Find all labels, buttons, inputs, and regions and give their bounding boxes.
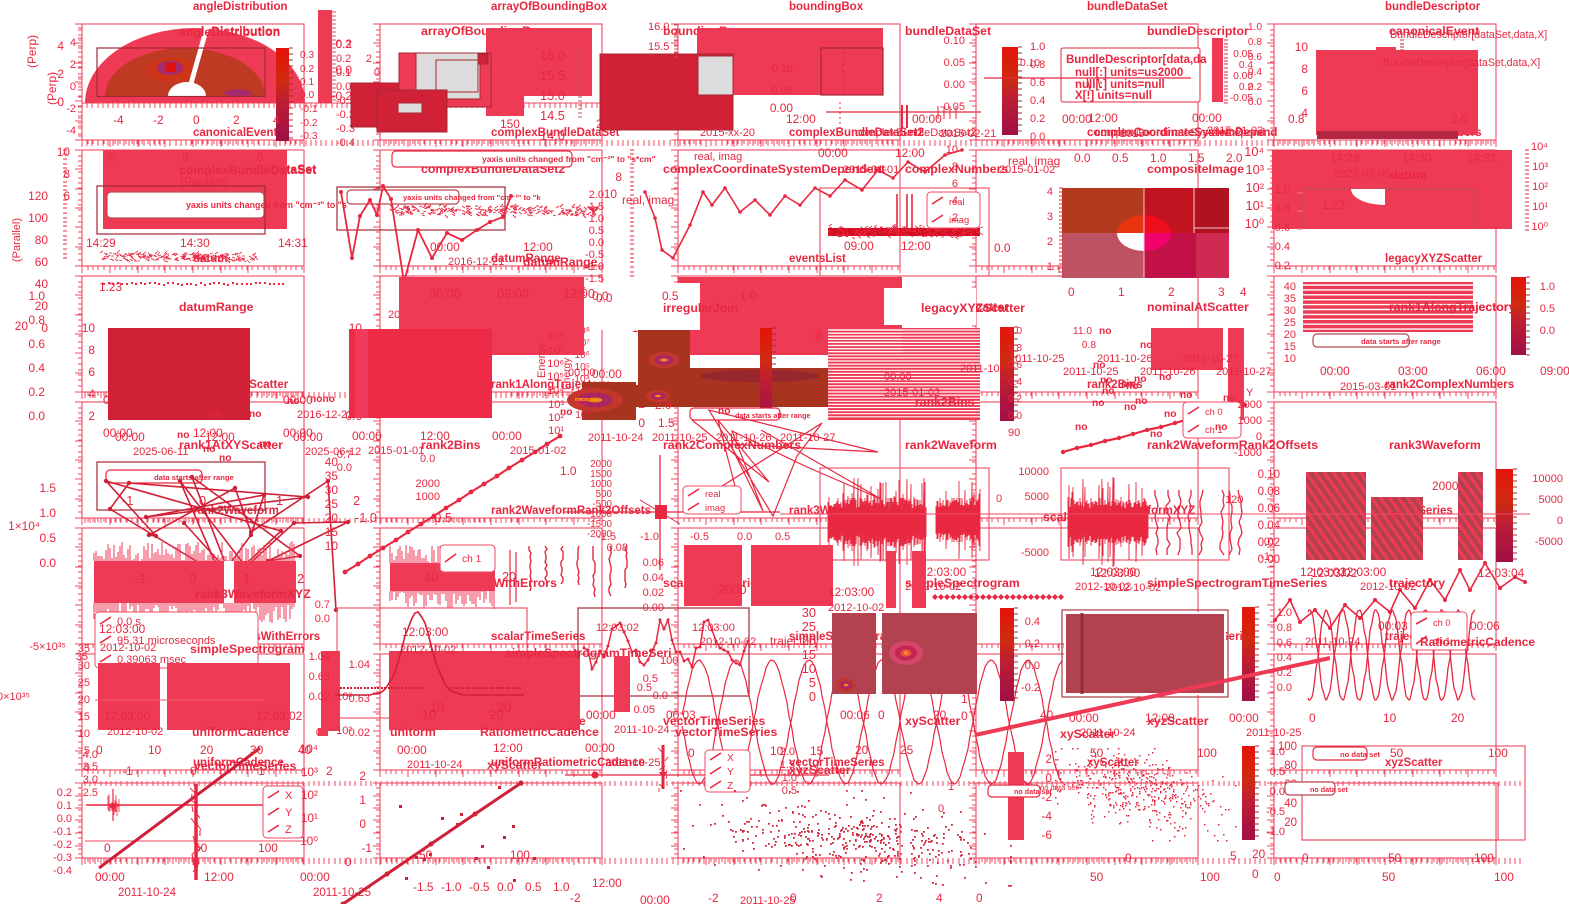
svg-text:es: es <box>1390 509 1402 521</box>
svg-text:2015-01-02: 2015-01-02 <box>510 445 566 457</box>
svg-text:10: 10 <box>325 539 339 553</box>
svg-text:1.5: 1.5 <box>39 481 56 495</box>
svg-text:1: 1 <box>1047 261 1053 273</box>
svg-text:5: 5 <box>257 150 264 164</box>
svg-text:0.0: 0.0 <box>1030 131 1045 143</box>
svg-text:bundleDescriptor: bundleDescriptor <box>1147 24 1249 38</box>
svg-text:0: 0 <box>1045 771 1052 785</box>
svg-text:0.2: 0.2 <box>28 385 45 399</box>
svg-text:0.5: 0.5 <box>1112 151 1129 165</box>
svg-text:1.23: 1.23 <box>99 280 123 294</box>
svg-text:12:00: 12:00 <box>420 429 450 443</box>
svg-text:10³: 10³ <box>336 691 352 703</box>
svg-text:1.0: 1.0 <box>1248 22 1262 33</box>
svg-text:-0.3: -0.3 <box>300 131 318 142</box>
svg-text:yaxis units changed from "cm⁻³: yaxis units changed from "cm⁻³" to "s*cm… <box>482 154 656 164</box>
svg-text:-0.1: -0.1 <box>53 826 72 838</box>
svg-text:2011-10-25: 2011-10-25 <box>605 757 660 769</box>
svg-text:2011-10-27: 2011-10-27 <box>1216 366 1271 378</box>
svg-text:no data set: no data set <box>1340 750 1381 759</box>
svg-text:0.5: 0.5 <box>1270 766 1285 778</box>
svg-text:0.0: 0.0 <box>57 813 72 825</box>
svg-text:2000: 2000 <box>718 582 746 597</box>
svg-text:6: 6 <box>1301 84 1308 98</box>
svg-text:3.0: 3.0 <box>83 774 98 786</box>
svg-text:(Parallel): (Parallel) <box>180 175 228 189</box>
svg-text:10⁰: 10⁰ <box>300 834 318 848</box>
svg-text:12:03:00: 12:03:00 <box>692 622 735 634</box>
svg-text:-1000: -1000 <box>1234 447 1262 459</box>
svg-text:0.4: 0.4 <box>1008 377 1022 388</box>
svg-text:10³: 10³ <box>575 386 590 397</box>
svg-text:0.6: 0.6 <box>1277 637 1292 649</box>
svg-text:80: 80 <box>35 233 49 247</box>
svg-text:0.0: 0.0 <box>1248 97 1262 108</box>
svg-text:1.0: 1.0 <box>1540 281 1555 293</box>
svg-text:12:00: 12:00 <box>193 426 223 440</box>
svg-text:10000: 10000 <box>1018 466 1049 478</box>
svg-text:100: 100 <box>1494 870 1514 884</box>
svg-text:2: 2 <box>366 53 372 65</box>
svg-text:35: 35 <box>78 643 90 655</box>
svg-text:no: no <box>1075 422 1087 433</box>
svg-text:2000: 2000 <box>416 478 440 490</box>
svg-text:00:00: 00:00 <box>1192 111 1222 125</box>
svg-text:-0.4: -0.4 <box>53 865 72 877</box>
svg-text:no: no <box>1099 326 1111 337</box>
svg-text:4: 4 <box>1047 186 1053 198</box>
svg-text:2.0: 2.0 <box>589 189 604 201</box>
svg-text:09:00: 09:00 <box>497 286 529 301</box>
svg-text:no: no <box>259 439 271 450</box>
svg-text:0.2: 0.2 <box>1275 260 1290 272</box>
svg-text:xyScatter: xyScatter <box>487 758 543 772</box>
svg-text:2011-10-25: 2011-10-25 <box>740 895 795 904</box>
svg-text:2011-10-25: 2011-10-25 <box>1009 353 1064 365</box>
svg-text:2011-10-27: 2011-10-27 <box>1183 353 1238 365</box>
svg-text:no: no <box>1180 390 1192 401</box>
svg-text:0: 0 <box>70 81 76 93</box>
svg-text:2011-10-25: 2011-10-25 <box>313 887 371 899</box>
svg-text:-1.0: -1.0 <box>441 880 462 894</box>
svg-text:2011-10-25: 2011-10-25 <box>1246 727 1301 739</box>
svg-text:10: 10 <box>1284 353 1296 365</box>
svg-text:no: no <box>1092 398 1104 409</box>
svg-text:1: 1 <box>961 692 968 706</box>
svg-text:10⁴: 10⁴ <box>574 374 590 385</box>
svg-text:100: 100 <box>1488 746 1508 760</box>
svg-text:-4: -4 <box>1041 809 1052 823</box>
svg-text:15.0: 15.0 <box>540 88 565 103</box>
svg-text:0.6: 0.6 <box>1248 52 1262 63</box>
svg-text:10²: 10² <box>575 398 590 409</box>
svg-text:2025-05-06: 2025-05-06 <box>1334 168 1390 180</box>
svg-text:angleDistribution: angleDistribution <box>179 25 280 39</box>
svg-text:0.10: 0.10 <box>772 63 793 75</box>
svg-text:0.4: 0.4 <box>1025 616 1040 628</box>
svg-text:16.0: 16.0 <box>540 48 565 63</box>
svg-text:0: 0 <box>374 67 380 79</box>
svg-text:10: 10 <box>430 700 444 715</box>
svg-text:1: 1 <box>359 793 366 807</box>
svg-text:0.2: 0.2 <box>57 787 72 799</box>
svg-text:no: no <box>1124 402 1136 413</box>
svg-text:50: 50 <box>1090 746 1104 760</box>
svg-text:Y: Y <box>285 807 293 819</box>
svg-text:1.5: 1.5 <box>780 759 795 771</box>
svg-text:2012-10-02: 2012-10-02 <box>400 644 456 656</box>
svg-text:10²: 10² <box>301 788 318 802</box>
svg-text:0.2: 0.2 <box>1008 394 1022 405</box>
svg-text:2015-03-01: 2015-03-01 <box>1340 381 1396 393</box>
svg-text:legacyXYZScatter: legacyXYZScatter <box>1385 253 1483 265</box>
svg-text:12:03:00: 12:03:00 <box>828 585 875 599</box>
svg-text:0: 0 <box>1309 711 1316 725</box>
svg-text:2012-10-02: 2012-10-02 <box>100 642 156 654</box>
svg-text:20: 20 <box>15 319 29 333</box>
svg-text:20: 20 <box>855 743 869 757</box>
svg-text:35: 35 <box>325 469 339 483</box>
svg-text:rank2WaveformRank2Offsets: rank2WaveformRank2Offsets <box>491 505 651 517</box>
svg-text:2.0: 2.0 <box>1226 151 1243 165</box>
svg-text:-2: -2 <box>708 891 719 904</box>
svg-text:no: no <box>1102 386 1114 397</box>
svg-text:0: 0 <box>638 416 645 430</box>
svg-text:2015-01-01: 2015-01-01 <box>843 164 899 176</box>
svg-text:2.5: 2.5 <box>83 787 98 799</box>
svg-text:BundleDescriptor[dataSet,data,: BundleDescriptor[dataSet,data,X] <box>1390 29 1547 41</box>
svg-text:data starts after range: data starts after range <box>1361 337 1441 346</box>
svg-text:50: 50 <box>1390 746 1404 760</box>
svg-text:0.8: 0.8 <box>28 313 45 327</box>
svg-text:10⁰: 10⁰ <box>1531 221 1548 233</box>
svg-text:0: 0 <box>1068 285 1075 299</box>
svg-text:0.02: 0.02 <box>643 587 664 599</box>
svg-text:25: 25 <box>802 619 816 634</box>
svg-text:10⁴: 10⁴ <box>300 742 318 756</box>
svg-text:50: 50 <box>419 848 433 862</box>
svg-text:1.04: 1.04 <box>309 651 330 663</box>
svg-text:120: 120 <box>1225 494 1243 506</box>
svg-text:0: 0 <box>57 95 64 109</box>
svg-text:2011-10-25: 2011-10-25 <box>652 432 707 444</box>
svg-text:100: 100 <box>1197 746 1217 760</box>
svg-text:0: 0 <box>996 493 1002 505</box>
svg-text:0.5: 0.5 <box>662 289 679 303</box>
svg-text:1.0: 1.0 <box>782 772 797 784</box>
svg-text:0.2: 0.2 <box>1025 638 1040 650</box>
svg-text:12:00: 12:00 <box>1088 111 1118 125</box>
svg-text:-1.0: -1.0 <box>1266 826 1285 838</box>
svg-text:-5×10³⁵: -5×10³⁵ <box>29 641 66 653</box>
svg-text:no data set: no data set <box>1310 785 1349 794</box>
svg-text:4: 4 <box>936 891 943 904</box>
svg-text:0: 0 <box>790 891 797 904</box>
svg-text:2: 2 <box>1045 752 1052 766</box>
svg-text:8: 8 <box>952 161 958 173</box>
svg-text:2016-12-21: 2016-12-21 <box>448 256 504 268</box>
svg-text:simpleSpectrogram: simpleSpectrogram <box>190 642 305 656</box>
svg-text:rank2Bins: rank2Bins <box>915 395 975 409</box>
svg-text:0.0: 0.0 <box>337 462 352 474</box>
svg-text:datum: datum <box>1390 168 1427 182</box>
svg-text:-0.2: -0.2 <box>300 118 318 129</box>
svg-text:8: 8 <box>1301 62 1308 76</box>
svg-text:uniformCadence: uniformCadence <box>192 725 289 739</box>
svg-text:0: 0 <box>104 841 111 855</box>
svg-text:12:00: 12:00 <box>895 146 925 160</box>
svg-text:100: 100 <box>258 841 278 855</box>
svg-text:0.4: 0.4 <box>1277 652 1292 664</box>
svg-text:X[!] units=null: X[!] units=null <box>1075 90 1152 102</box>
svg-text:50: 50 <box>1090 870 1104 884</box>
svg-text:50: 50 <box>1382 870 1396 884</box>
svg-text:10¹: 10¹ <box>575 410 590 421</box>
svg-text:0.00: 0.00 <box>643 602 664 614</box>
svg-text:30: 30 <box>250 743 264 757</box>
svg-text:10⁴: 10⁴ <box>547 385 564 397</box>
svg-text:14:29: 14:29 <box>1330 151 1360 165</box>
svg-text:rank1AlongTrajectory: rank1AlongTrajectory <box>1389 300 1516 314</box>
svg-text:-1: -1 <box>1260 551 1270 563</box>
svg-text:0.00: 0.00 <box>944 79 965 91</box>
svg-text:Z: Z <box>285 824 292 836</box>
svg-text:00:00: 00:00 <box>352 429 382 443</box>
svg-text:12:00: 12:00 <box>204 870 234 884</box>
svg-text:0.5: 0.5 <box>39 531 56 545</box>
svg-text:Z: Z <box>727 781 733 792</box>
svg-text:2011-10-24: 2011-10-24 <box>588 432 643 444</box>
svg-text:2: 2 <box>353 493 360 508</box>
svg-text:0.63: 0.63 <box>309 671 330 683</box>
svg-text:10000: 10000 <box>1532 473 1563 485</box>
svg-text:-1: -1 <box>122 493 133 508</box>
svg-text:10¹: 10¹ <box>1246 198 1265 213</box>
svg-text:0.10: 0.10 <box>944 35 965 47</box>
svg-text:xyScatter: xyScatter <box>1060 727 1116 741</box>
svg-text:2: 2 <box>1047 236 1053 248</box>
svg-text:10⁶: 10⁶ <box>547 358 564 370</box>
svg-text:16.0: 16.0 <box>648 21 669 33</box>
svg-text:0.02: 0.02 <box>309 691 330 703</box>
svg-text:6: 6 <box>63 189 70 203</box>
svg-text:10⁰: 10⁰ <box>1245 216 1264 231</box>
svg-text:0: 0 <box>1557 515 1563 527</box>
svg-text:8: 8 <box>88 343 95 357</box>
svg-text:00:00: 00:00 <box>1229 711 1259 725</box>
svg-text:6: 6 <box>88 365 95 379</box>
svg-text:00:00: 00:00 <box>912 112 942 126</box>
svg-text:no: no <box>1164 409 1176 420</box>
svg-text:00:00: 00:00 <box>884 371 912 383</box>
svg-text:12:00: 12:00 <box>592 876 622 890</box>
svg-text:-2: -2 <box>66 103 76 115</box>
svg-text:0.8: 0.8 <box>1082 340 1096 351</box>
svg-text:10³: 10³ <box>1246 162 1265 177</box>
svg-text:0.5: 0.5 <box>775 531 790 543</box>
svg-text:-0.4: -0.4 <box>336 137 355 149</box>
svg-text:rank3WaveformXYZ: rank3WaveformXYZ <box>195 587 311 601</box>
svg-text:0.04: 0.04 <box>1258 520 1281 532</box>
svg-text:00:00: 00:00 <box>640 893 670 904</box>
svg-text:no: no <box>208 409 220 420</box>
svg-text:0.7: 0.7 <box>337 449 352 461</box>
svg-text:bundleDataSet: bundleDataSet <box>1087 1 1168 13</box>
svg-text:-1.0: -1.0 <box>640 531 659 543</box>
svg-text:1.0: 1.0 <box>28 289 45 303</box>
svg-text:120: 120 <box>28 189 48 203</box>
svg-text:-4: -4 <box>66 125 76 137</box>
svg-text:4: 4 <box>57 39 64 53</box>
svg-text:0.0: 0.0 <box>1540 325 1555 337</box>
svg-text:nono: nono <box>310 394 335 405</box>
svg-text:4: 4 <box>273 113 280 127</box>
svg-text:0.5: 0.5 <box>637 682 652 694</box>
svg-text:5: 5 <box>809 675 816 690</box>
svg-text:2: 2 <box>952 212 958 224</box>
svg-text:real, imag: real, imag <box>1008 154 1060 168</box>
svg-text:10³: 10³ <box>301 765 318 779</box>
svg-text:ch 0: ch 0 <box>1205 407 1223 417</box>
svg-text:RatiometricCadence: RatiometricCadence <box>1420 635 1535 649</box>
svg-text:0.0: 0.0 <box>653 690 668 702</box>
svg-text:1.23: 1.23 <box>1322 198 1346 212</box>
svg-text:vectorTimeSeries: vectorTimeSeries <box>194 759 296 773</box>
svg-text:0.10: 0.10 <box>1020 58 1040 69</box>
svg-text:-0.3: -0.3 <box>53 852 72 864</box>
svg-text:0.4: 0.4 <box>1248 67 1262 78</box>
svg-text:imag: imag <box>705 503 725 513</box>
svg-text:1×10⁴: 1×10⁴ <box>8 519 40 533</box>
svg-text:4: 4 <box>1240 285 1247 299</box>
svg-text:0.8: 0.8 <box>1275 203 1290 215</box>
svg-text:10¹: 10¹ <box>301 811 318 825</box>
svg-text:0.0: 0.0 <box>994 241 1011 255</box>
svg-text:0.0: 0.0 <box>1277 682 1292 694</box>
svg-text:angleDistribution: angleDistribution <box>193 1 288 13</box>
svg-text:0.6: 0.6 <box>1030 77 1045 89</box>
svg-text:20: 20 <box>325 511 339 525</box>
svg-text:10¹: 10¹ <box>548 425 564 437</box>
svg-text:0.5: 0.5 <box>525 880 542 894</box>
svg-text:2015-01-01: 2015-01-01 <box>368 445 424 457</box>
svg-text:3: 3 <box>1218 285 1225 299</box>
svg-text:20: 20 <box>1284 329 1296 341</box>
svg-text:-4: -4 <box>113 113 124 127</box>
svg-text:14:31: 14:31 <box>278 236 308 250</box>
svg-text:100: 100 <box>660 655 678 667</box>
svg-text:irregularJoin: irregularJoin <box>663 301 738 315</box>
svg-text:12:00: 12:00 <box>493 741 523 755</box>
svg-text:no: no <box>1150 429 1162 440</box>
svg-text:2: 2 <box>233 113 240 127</box>
svg-text:10⁸: 10⁸ <box>547 331 564 343</box>
svg-text:25: 25 <box>78 677 90 689</box>
svg-text:0.08: 0.08 <box>607 542 628 554</box>
svg-text:10⁷: 10⁷ <box>548 345 564 357</box>
svg-text:2: 2 <box>326 764 333 778</box>
svg-text:-0.2: -0.2 <box>332 89 353 103</box>
svg-text:4: 4 <box>88 387 95 401</box>
svg-text:X: X <box>727 753 734 764</box>
svg-text:RatiometricCadence: RatiometricCadence <box>480 725 599 739</box>
svg-text:0: 0 <box>189 571 196 586</box>
svg-text:-5000: -5000 <box>1535 536 1563 548</box>
svg-text:14:30: 14:30 <box>180 236 210 250</box>
svg-text:2011-10-25: 2011-10-25 <box>1063 366 1118 378</box>
svg-text:0.5: 0.5 <box>589 225 604 237</box>
svg-text:100: 100 <box>1474 851 1494 865</box>
svg-text:0.0: 0.0 <box>737 531 752 543</box>
svg-text:datumRange: datumRange <box>179 300 254 314</box>
svg-text:ch 1: ch 1 <box>462 554 482 565</box>
svg-text:data starts after range: data starts after range <box>735 411 811 420</box>
svg-text:canonicalEvent: canonicalEvent <box>193 127 278 139</box>
svg-text:0.8: 0.8 <box>1248 37 1262 48</box>
svg-text:03:00: 03:00 <box>1398 364 1428 378</box>
svg-text:09:00: 09:00 <box>1540 364 1569 378</box>
svg-text:40: 40 <box>1284 281 1296 293</box>
svg-text:BundleDescriptor[dataSet,data,: BundleDescriptor[dataSet,data,X] <box>1383 57 1540 69</box>
svg-text:rank2Waveform: rank2Waveform <box>905 438 997 452</box>
svg-text:0.2: 0.2 <box>335 37 352 51</box>
svg-text:20: 20 <box>502 569 516 584</box>
svg-text:10: 10 <box>1383 711 1397 725</box>
svg-text:2: 2 <box>88 409 95 423</box>
svg-text:0.05: 0.05 <box>772 85 793 97</box>
svg-text:14:30: 14:30 <box>1402 151 1432 165</box>
svg-text:0.04: 0.04 <box>643 572 664 584</box>
svg-text:vectorTimeSeries: vectorTimeSeries <box>675 725 777 739</box>
svg-text:12:03:02: 12:03:02 <box>1311 566 1358 580</box>
svg-text:2: 2 <box>359 769 366 783</box>
svg-text:100: 100 <box>510 848 530 862</box>
svg-text:0.0: 0.0 <box>596 291 613 305</box>
svg-text:rank2ComplexNumbers: rank2ComplexNumbers <box>1385 379 1514 391</box>
svg-text:5: 5 <box>1230 849 1237 863</box>
svg-text:10⁵: 10⁵ <box>547 371 564 383</box>
svg-text:12:00: 12:00 <box>1145 711 1175 725</box>
svg-text:00:00: 00:00 <box>592 367 622 381</box>
svg-text:90: 90 <box>1008 427 1020 439</box>
svg-text:0.6: 0.6 <box>1275 222 1290 234</box>
svg-text:06:00: 06:00 <box>1476 364 1506 378</box>
svg-text:3.5: 3.5 <box>83 761 98 773</box>
svg-text:3: 3 <box>1047 211 1053 223</box>
svg-text:1.0: 1.0 <box>553 880 570 894</box>
svg-text:8: 8 <box>615 170 622 184</box>
svg-text:00:00: 00:00 <box>818 146 848 160</box>
svg-text:0.0: 0.0 <box>1074 151 1091 165</box>
svg-text:14.5: 14.5 <box>540 108 565 123</box>
svg-text:0.10: 0.10 <box>1258 469 1280 481</box>
svg-text:12:00: 12:00 <box>523 240 553 254</box>
svg-text:2.0: 2.0 <box>655 398 672 412</box>
svg-text:-2000: -2000 <box>587 529 613 540</box>
svg-text:0.08: 0.08 <box>1258 486 1280 498</box>
svg-text:1000: 1000 <box>1238 415 1262 427</box>
svg-text:0.2: 0.2 <box>1248 82 1262 93</box>
svg-text:-0.5: -0.5 <box>430 510 452 525</box>
svg-text:2012-10-02: 2012-10-02 <box>828 602 884 614</box>
svg-text:no: no <box>888 226 900 237</box>
svg-text:12:03:04: 12:03:04 <box>1478 566 1525 580</box>
svg-text:65: 65 <box>814 330 824 340</box>
svg-text:0: 0 <box>688 746 695 760</box>
svg-text:2.0: 2.0 <box>780 746 795 758</box>
svg-text:0.0: 0.0 <box>1270 786 1285 798</box>
svg-text:0.2: 0.2 <box>300 64 314 75</box>
